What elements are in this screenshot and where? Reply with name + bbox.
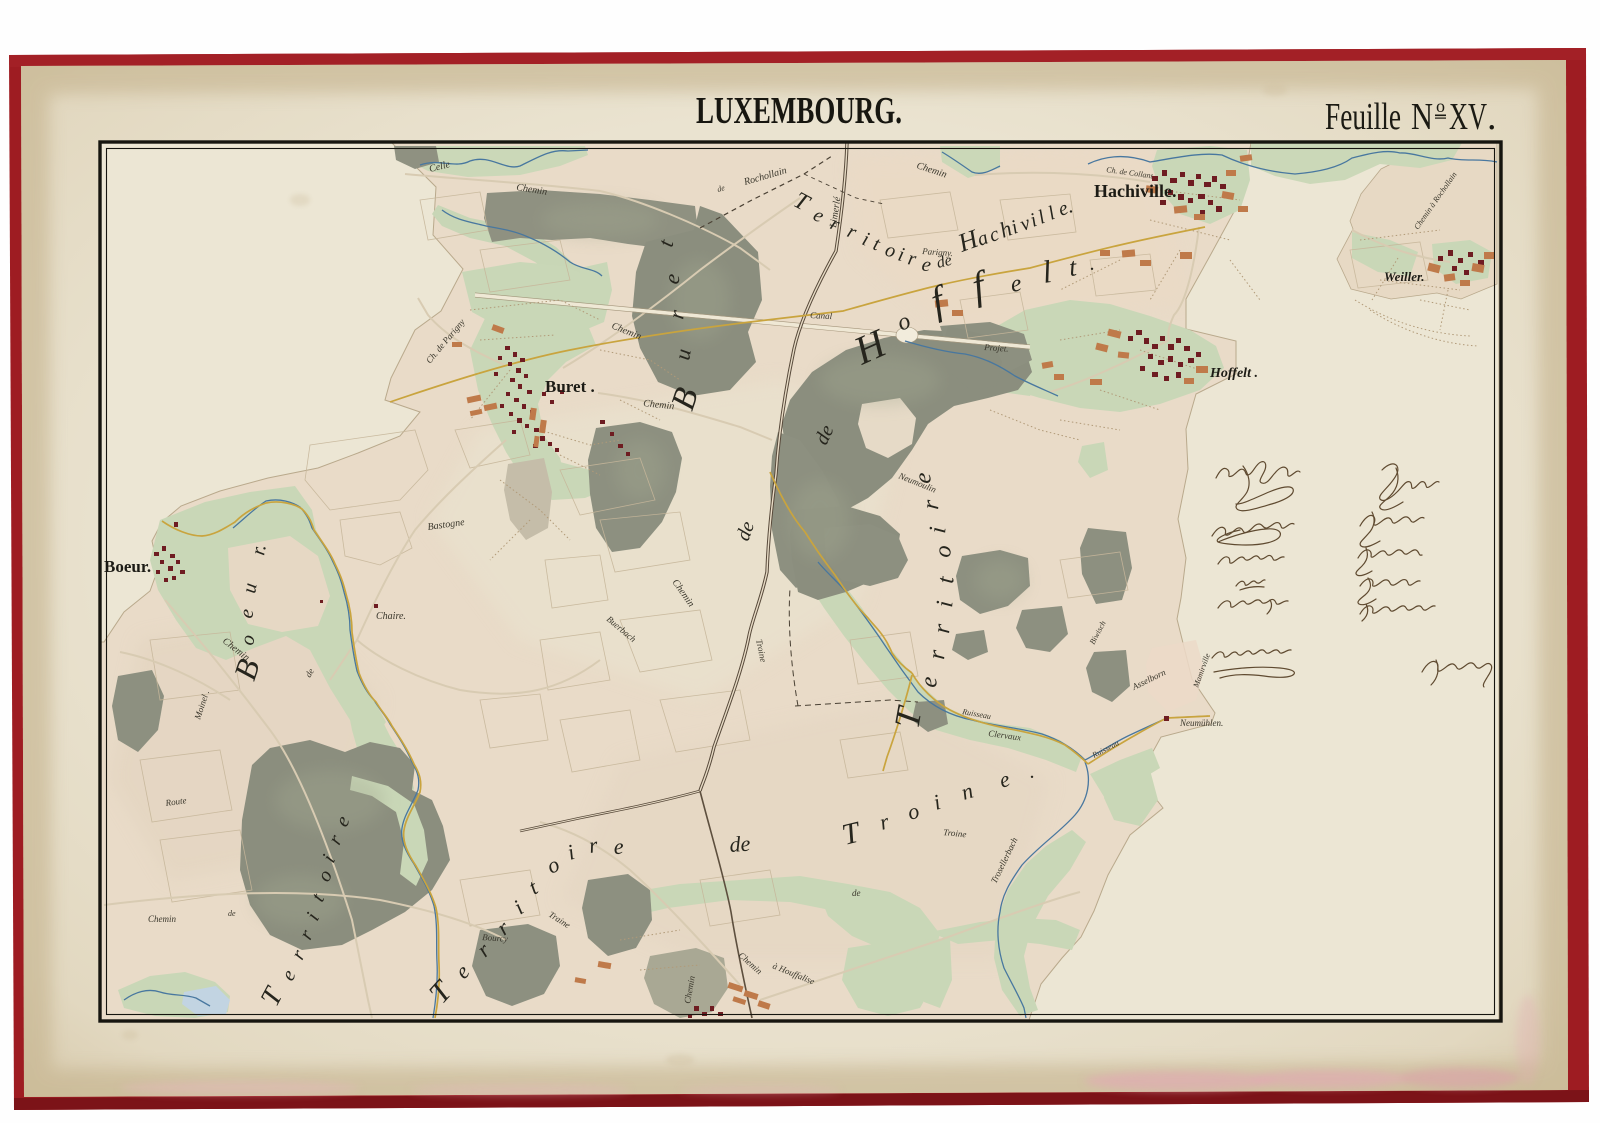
svg-text:.: . (1090, 253, 1095, 275)
svg-text:Neumühlen.: Neumühlen. (1179, 718, 1223, 728)
svg-text:o: o (930, 544, 957, 558)
svg-text:Feuille: Feuille (1325, 96, 1401, 138)
svg-text:N: N (1411, 96, 1433, 138)
svg-text:.: . (1487, 96, 1497, 138)
svg-text:Buret .: Buret . (545, 377, 595, 396)
svg-text:Hachiville.: Hachiville. (1094, 181, 1177, 201)
svg-text:Boeur.: Boeur. (104, 557, 151, 576)
svg-text:de: de (228, 909, 236, 918)
svg-text:Hoffelt .: Hoffelt . (1209, 366, 1258, 381)
svg-text:o: o (1436, 96, 1445, 116)
svg-text:LUXEMBOURG.: LUXEMBOURG. (696, 90, 902, 132)
svg-text:e: e (613, 834, 624, 859)
svg-text:.: . (1030, 761, 1035, 783)
svg-text:Weiller.: Weiller. (1384, 269, 1425, 284)
svg-text:Canal: Canal (810, 310, 833, 321)
svg-text:Chemin: Chemin (148, 914, 176, 924)
svg-text:Projet.: Projet. (983, 342, 1009, 354)
svg-text:de: de (729, 831, 752, 857)
svg-text:de: de (852, 888, 861, 898)
svg-text:XV: XV (1449, 96, 1487, 138)
svg-text:Chaire.: Chaire. (376, 611, 406, 622)
